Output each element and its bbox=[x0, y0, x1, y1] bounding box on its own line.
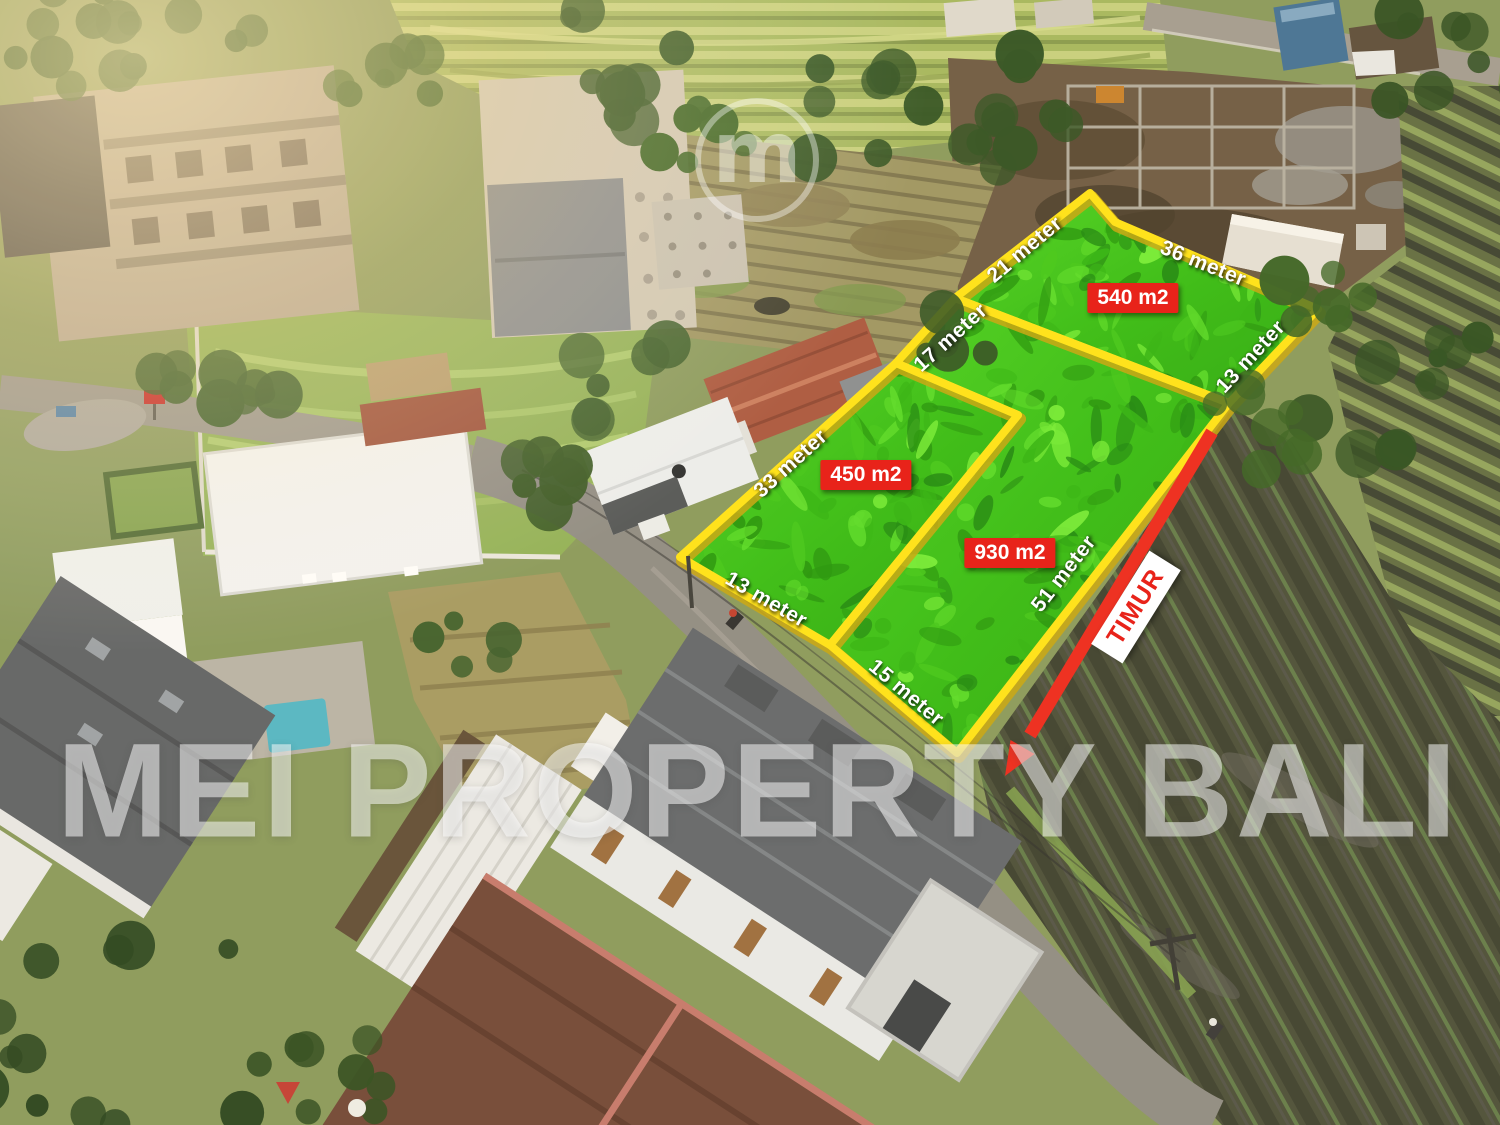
plot450-edge-sw-label: 13 meter bbox=[721, 567, 811, 633]
direction-east-label: TIMUR bbox=[1091, 550, 1181, 663]
watermark-logo-circle: m bbox=[695, 98, 819, 222]
plot930-area-badge: 930 m2 bbox=[964, 538, 1055, 568]
watermark-title: MEI PROPERTY BALI bbox=[57, 715, 1460, 868]
plot540-area-badge: 540 m2 bbox=[1087, 283, 1178, 313]
aerial-listing-photo: 21 meter 36 meter 13 meter 540 m2 17 met… bbox=[0, 0, 1500, 1125]
watermark-logo-letter: m bbox=[712, 110, 802, 196]
plot540-edge-se-label: 13 meter bbox=[1211, 316, 1290, 398]
plot450-area-badge: 450 m2 bbox=[820, 460, 911, 490]
plot930-edge-nw-label: 17 meter bbox=[909, 299, 992, 377]
plot540-edge-nw-label: 21 meter bbox=[983, 212, 1068, 288]
